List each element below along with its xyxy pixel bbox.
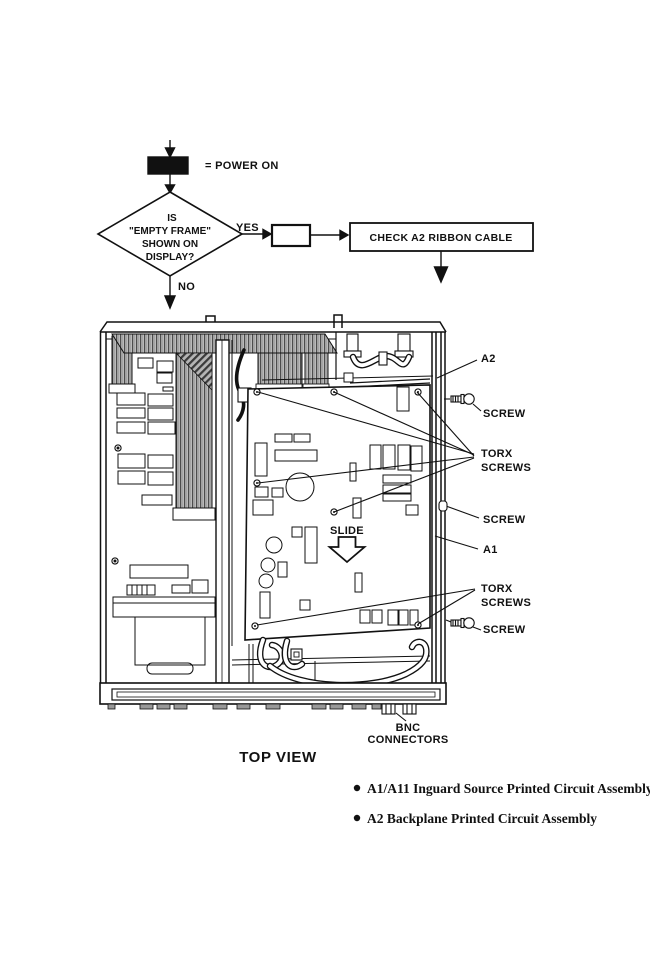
yes-process-box (272, 225, 310, 246)
cable-clamp-bottom (291, 649, 302, 660)
screw-icon-top (451, 394, 474, 404)
black-wire (237, 350, 244, 420)
a2-label: A2 (481, 353, 496, 365)
bnc-connector-icons (382, 704, 416, 714)
action-label: CHECK A2 RIBBON CABLE (370, 232, 513, 244)
transformer (135, 617, 205, 665)
decision-line1: IS (167, 213, 177, 224)
legend-item-a2: A2 Backplane Printed Circuit Assembly (367, 811, 597, 826)
torx-bottom-label-line2: SCREWS (481, 597, 531, 609)
manual-page: = POWER ON IS "EMPTY FRAME" SHOWN ON DIS… (0, 0, 650, 975)
bnc-label-line2: CONNECTORS (367, 734, 448, 746)
start-terminator (148, 157, 188, 174)
top-view-caption: TOP VIEW (239, 749, 317, 766)
screw-icon-bottom (451, 618, 474, 628)
decision-line2: "EMPTY FRAME" (129, 226, 211, 237)
legend: A1/A11 Inguard Source Printed Circuit As… (354, 781, 650, 826)
legend-item-a1: A1/A11 Inguard Source Printed Circuit As… (367, 781, 650, 796)
screw-bottom-label: SCREW (483, 624, 526, 636)
chassis-illustration (100, 315, 446, 714)
a2-board-edge (350, 379, 430, 383)
front-panel-feet (108, 704, 381, 709)
screw-top-label: SCREW (483, 408, 526, 420)
torx-top-label-line1: TORX (481, 448, 513, 460)
cable-clamp (379, 352, 387, 365)
decision-line4: DISPLAY? (146, 252, 195, 263)
bnc-label-line1: BNC (396, 722, 421, 734)
yes-label: YES (236, 222, 259, 234)
decision-line3: SHOWN ON (142, 239, 198, 250)
screw-mid-label: SCREW (483, 514, 526, 526)
torx-top-label-line2: SCREWS (481, 462, 531, 474)
wall-screw-boss (439, 501, 447, 511)
slide-label: SLIDE (330, 525, 364, 537)
flowchart: = POWER ON IS "EMPTY FRAME" SHOWN ON DIS… (98, 140, 533, 308)
a1-label: A1 (483, 544, 498, 556)
no-label: NO (178, 281, 195, 293)
torx-bottom-label-line1: TORX (481, 583, 513, 595)
front-panel (100, 683, 446, 714)
center-divider (216, 340, 232, 683)
power-on-label: = POWER ON (205, 160, 279, 172)
bullet-icon (354, 815, 360, 821)
bullet-icon (354, 785, 360, 791)
